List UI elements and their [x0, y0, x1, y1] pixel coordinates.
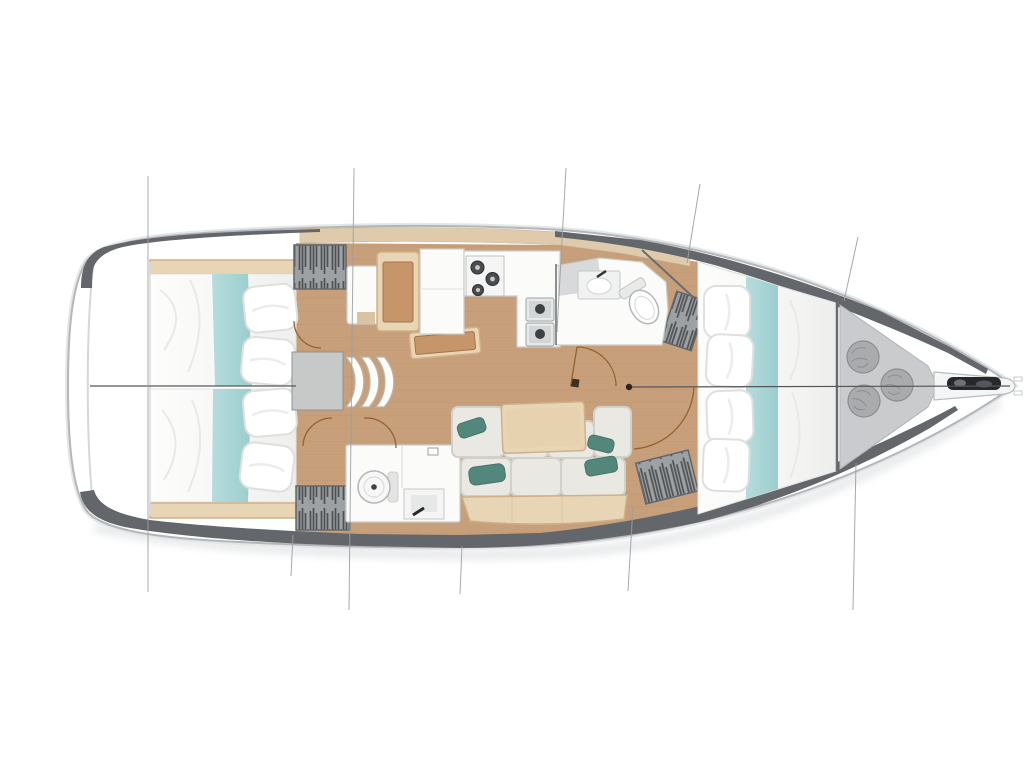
hanging-locker-aft-starboard	[296, 486, 350, 530]
pillow	[242, 283, 299, 334]
footboard-shelf	[150, 503, 296, 518]
head-sink	[578, 271, 620, 299]
headboard-shelf	[150, 260, 296, 274]
pillow	[704, 286, 750, 338]
door-hinge	[626, 384, 632, 390]
stove-icon	[466, 256, 504, 296]
head-sink	[404, 489, 444, 519]
forward-cabin	[698, 262, 837, 514]
pillow	[702, 438, 750, 492]
pillow	[706, 390, 754, 444]
aft-head	[346, 445, 460, 522]
galley-cabinet	[420, 249, 464, 334]
settee-cushion	[511, 458, 561, 496]
table-inset	[506, 407, 580, 449]
seat-trim	[357, 312, 375, 324]
toilet-icon	[358, 471, 398, 503]
pillow	[242, 387, 298, 437]
anchor-detail	[954, 380, 966, 387]
floor-plan-drawing	[0, 0, 1024, 768]
engine-box	[292, 352, 343, 410]
hanging-locker-aft-port	[294, 245, 346, 289]
settee-base	[462, 495, 627, 524]
salon-table	[501, 402, 586, 454]
pillow	[705, 334, 754, 388]
pillow	[238, 441, 295, 493]
aft-cabin-port	[150, 260, 299, 386]
chart-table-top	[383, 262, 413, 322]
aft-cabin-starboard	[150, 387, 298, 518]
boat-floor-plan	[0, 0, 1024, 768]
pillow	[240, 336, 296, 386]
